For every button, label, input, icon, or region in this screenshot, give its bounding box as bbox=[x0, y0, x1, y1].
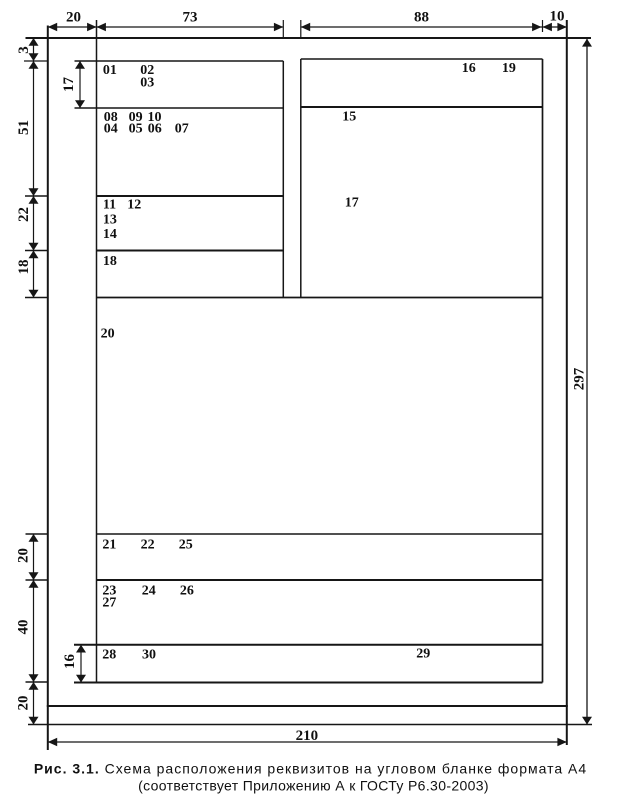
svg-text:03: 03 bbox=[140, 76, 154, 91]
svg-text:30: 30 bbox=[142, 648, 156, 663]
svg-text:22: 22 bbox=[16, 207, 32, 222]
svg-text:3: 3 bbox=[16, 46, 32, 54]
svg-text:20: 20 bbox=[66, 10, 81, 26]
svg-text:28: 28 bbox=[102, 648, 116, 663]
svg-text:24: 24 bbox=[142, 583, 156, 598]
svg-text:19: 19 bbox=[502, 61, 516, 76]
svg-text:16: 16 bbox=[462, 61, 476, 76]
svg-text:20: 20 bbox=[101, 327, 115, 342]
svg-text:20: 20 bbox=[16, 548, 32, 563]
svg-text:18: 18 bbox=[16, 260, 32, 275]
svg-text:22: 22 bbox=[141, 537, 155, 552]
svg-text:27: 27 bbox=[102, 596, 116, 611]
svg-text:14: 14 bbox=[103, 227, 117, 242]
svg-text:40: 40 bbox=[16, 620, 32, 635]
svg-text:(соответствует Приложению А к: (соответствует Приложению А к ГОСТу Р6.3… bbox=[138, 778, 489, 794]
svg-text:297: 297 bbox=[572, 367, 588, 390]
svg-text:210: 210 bbox=[296, 728, 319, 744]
svg-text:17: 17 bbox=[61, 77, 77, 93]
svg-text:13: 13 bbox=[103, 213, 117, 228]
svg-text:01: 01 bbox=[103, 63, 117, 78]
svg-text:17: 17 bbox=[345, 196, 359, 211]
svg-text:11: 11 bbox=[103, 197, 116, 212]
svg-text:73: 73 bbox=[183, 10, 198, 26]
svg-text:16: 16 bbox=[62, 654, 78, 670]
svg-text:18: 18 bbox=[103, 254, 117, 269]
svg-text:05: 05 bbox=[129, 122, 143, 137]
svg-text:Рис. 3.1. Схема расположения р: Рис. 3.1. Схема расположения реквизитов … bbox=[34, 761, 587, 777]
svg-text:21: 21 bbox=[102, 537, 116, 552]
svg-text:51: 51 bbox=[16, 120, 32, 135]
svg-text:06: 06 bbox=[148, 122, 162, 137]
svg-text:26: 26 bbox=[180, 583, 194, 598]
svg-text:15: 15 bbox=[342, 110, 356, 125]
svg-text:07: 07 bbox=[175, 122, 189, 137]
svg-text:10: 10 bbox=[550, 9, 565, 25]
svg-text:25: 25 bbox=[179, 537, 193, 552]
svg-text:29: 29 bbox=[416, 647, 430, 662]
svg-text:20: 20 bbox=[16, 696, 32, 711]
svg-text:88: 88 bbox=[414, 10, 429, 26]
svg-text:12: 12 bbox=[127, 197, 141, 212]
svg-text:04: 04 bbox=[104, 122, 118, 137]
